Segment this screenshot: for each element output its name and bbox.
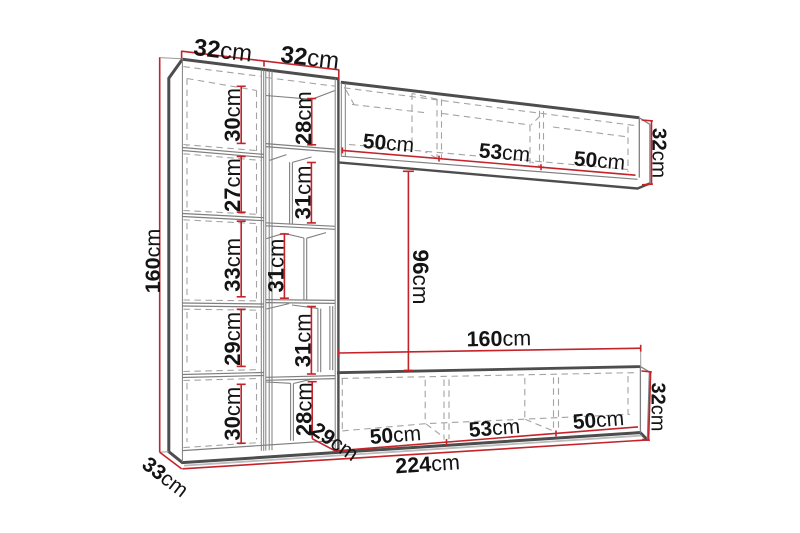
svg-text:160cm: 160cm [466, 326, 531, 351]
svg-text:28cm: 28cm [291, 91, 316, 145]
svg-text:50cm: 50cm [362, 130, 415, 157]
svg-text:32cm: 32cm [647, 383, 669, 432]
svg-text:27cm: 27cm [220, 158, 245, 212]
svg-text:224cm: 224cm [395, 450, 461, 478]
svg-text:50cm: 50cm [572, 407, 625, 434]
svg-text:30cm: 30cm [220, 88, 245, 142]
svg-text:50cm: 50cm [573, 147, 626, 174]
svg-text:50cm: 50cm [369, 422, 422, 449]
svg-text:33cm: 33cm [220, 238, 245, 292]
svg-text:53cm: 53cm [478, 139, 531, 166]
svg-text:29cm: 29cm [220, 312, 245, 366]
svg-text:31cm: 31cm [264, 239, 289, 293]
svg-text:31cm: 31cm [291, 313, 316, 367]
svg-text:32cm: 32cm [648, 128, 671, 178]
svg-text:53cm: 53cm [468, 415, 521, 442]
svg-text:30cm: 30cm [220, 387, 245, 441]
svg-text:160cm: 160cm [141, 229, 165, 294]
svg-text:96cm: 96cm [408, 249, 433, 304]
svg-text:31cm: 31cm [291, 165, 316, 219]
